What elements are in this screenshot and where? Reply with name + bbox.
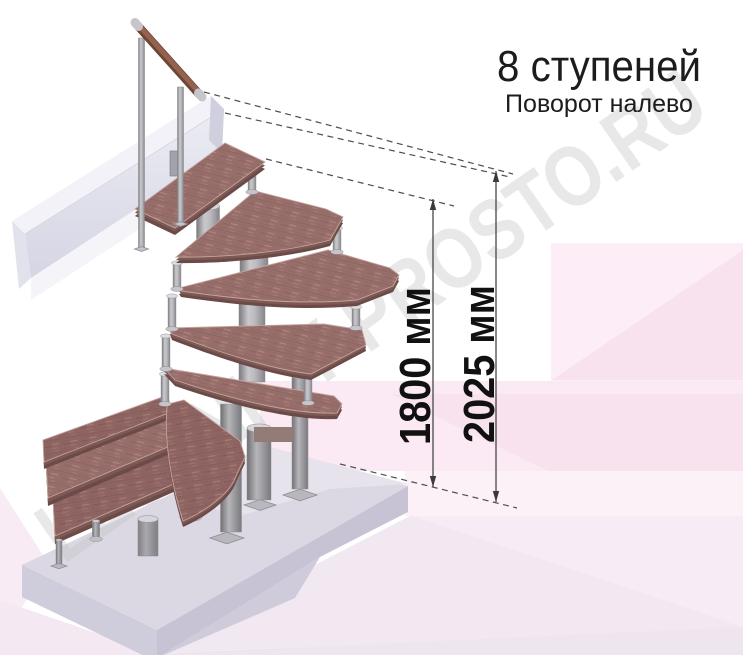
svg-text:Поворот налево: Поворот налево [505,90,693,118]
svg-text:1800 мм: 1800 мм [391,287,440,445]
svg-text:8 ступеней: 8 ступеней [497,42,701,91]
svg-text:2025 мм: 2025 мм [455,285,504,443]
